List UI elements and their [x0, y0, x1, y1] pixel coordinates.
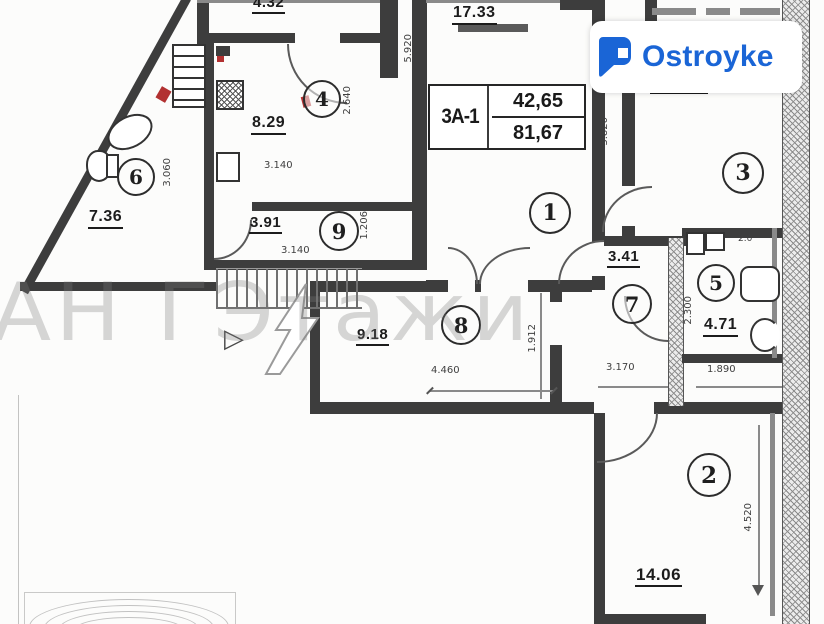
balcony-rail — [197, 0, 387, 3]
dim-1912: 1.912 — [528, 324, 538, 353]
dim-3170: 3.170 — [606, 363, 635, 373]
room-number-4: 4 — [303, 80, 341, 118]
area-label-balcony-top: 4.32 — [252, 0, 285, 14]
door-arc-room1-right — [558, 240, 604, 284]
area-label-bedroom-bottom: 14.06 — [635, 566, 682, 587]
kitchen-sink-icon — [216, 80, 244, 110]
dim-2300: 2.300 — [684, 296, 694, 325]
ostroyke-logo-card: Ostroyke — [590, 21, 802, 93]
wall-segment — [380, 0, 398, 78]
wall-kitchen-right — [412, 0, 427, 270]
washbasin-icon — [740, 266, 780, 302]
dim-line — [758, 425, 760, 585]
dim-line — [540, 293, 542, 399]
unit-area-total: 81,67 — [492, 118, 584, 148]
stair-direction-arrow — [262, 282, 332, 377]
dim-4460: 4.460 — [431, 366, 460, 376]
stove-icon — [216, 152, 240, 182]
room-number-7: 7 — [612, 284, 652, 324]
balcony-rail — [652, 8, 780, 15]
room-number-9: 9 — [319, 211, 359, 251]
dim-2640: 2.640 — [343, 86, 353, 115]
dim-4520: 4.520 — [744, 503, 754, 532]
wall-corridor-bottom — [310, 402, 594, 414]
room-number-6: 6 — [117, 158, 155, 196]
wall-segment — [550, 290, 562, 302]
red-marker — [155, 86, 171, 103]
area-label-bathroom-right: 4.71 — [703, 317, 738, 337]
wall-segment — [426, 280, 448, 292]
wall-segment — [682, 354, 794, 363]
sink-cabinet-icon — [705, 232, 725, 251]
room-number-1: 1 — [529, 192, 571, 234]
door-arc-hall9 — [214, 220, 252, 260]
dim-line — [696, 386, 782, 388]
wall-segment — [550, 345, 562, 403]
area-label-bathroom-left: 7.36 — [88, 209, 123, 229]
area-label-kitchen: 8.29 — [251, 115, 286, 135]
door-arc-room1-b — [479, 247, 530, 284]
room-number-2: 2 — [687, 453, 731, 497]
dim-3140-kitchen: 3.140 — [264, 161, 293, 171]
wall-segment — [594, 614, 706, 624]
toilet-icon-right — [750, 318, 780, 352]
wall-segment — [20, 282, 216, 291]
area-label-hall-right: 3.41 — [607, 249, 640, 268]
rail-gap — [730, 8, 740, 15]
dim-arrow-down — [752, 585, 764, 602]
wall-room3-left — [622, 86, 635, 186]
window-sill — [458, 24, 528, 32]
unit-label: 3А-1 — [433, 86, 489, 148]
dim-3060: 3.060 — [163, 158, 173, 187]
counter-icon — [216, 46, 230, 56]
dim-3140-hall: 3.140 — [281, 246, 310, 256]
dim-5920: 5.920 — [404, 34, 414, 63]
area-label-corridor: 9.18 — [356, 327, 389, 346]
unit-info-card: 3А-1 42,65 81,67 — [428, 84, 586, 150]
dim-line — [430, 390, 554, 392]
dim-line — [598, 386, 668, 388]
radiator-icon — [172, 44, 206, 108]
dim-1890: 1.890 — [707, 365, 736, 375]
page-edge-line — [18, 395, 19, 624]
entrance-door-symbol: ▷ — [224, 326, 244, 352]
door-arc-room3 — [602, 186, 652, 232]
wall-diagonal-exterior — [20, 0, 191, 294]
wall-hatch-column — [668, 238, 684, 406]
rail-gap — [696, 8, 706, 15]
dim-3820: 3.820 — [600, 117, 610, 146]
room-number-5: 5 — [697, 264, 735, 302]
ostroyke-logo-icon — [596, 34, 634, 80]
wall-room2-right — [770, 413, 775, 616]
bathtub-icon — [101, 107, 158, 158]
ostroyke-logo-text: Ostroyke — [642, 40, 774, 74]
washer-icon — [686, 232, 705, 255]
room-number-3: 3 — [722, 152, 764, 194]
room-number-8: 8 — [441, 305, 481, 345]
wall-segment — [252, 202, 426, 211]
unit-area-living: 42,65 — [492, 86, 584, 118]
wall-exterior-right — [782, 0, 810, 624]
door-arc-room1-a — [448, 247, 478, 284]
agency-logo-watermark — [24, 592, 236, 624]
door-arc-room2 — [597, 413, 658, 463]
dim-1206: 1.206 — [360, 211, 370, 240]
area-label-living-top: 17.33 — [452, 5, 497, 25]
area-label-hall-top: 3.91 — [249, 215, 282, 234]
floor-plan: ▷ 4.32 17.33 8.29 7.36 3.91 9.18 3.41 4.… — [0, 0, 824, 624]
dim-small-right: 2.0 — [738, 235, 752, 244]
wall-segment — [560, 0, 593, 10]
